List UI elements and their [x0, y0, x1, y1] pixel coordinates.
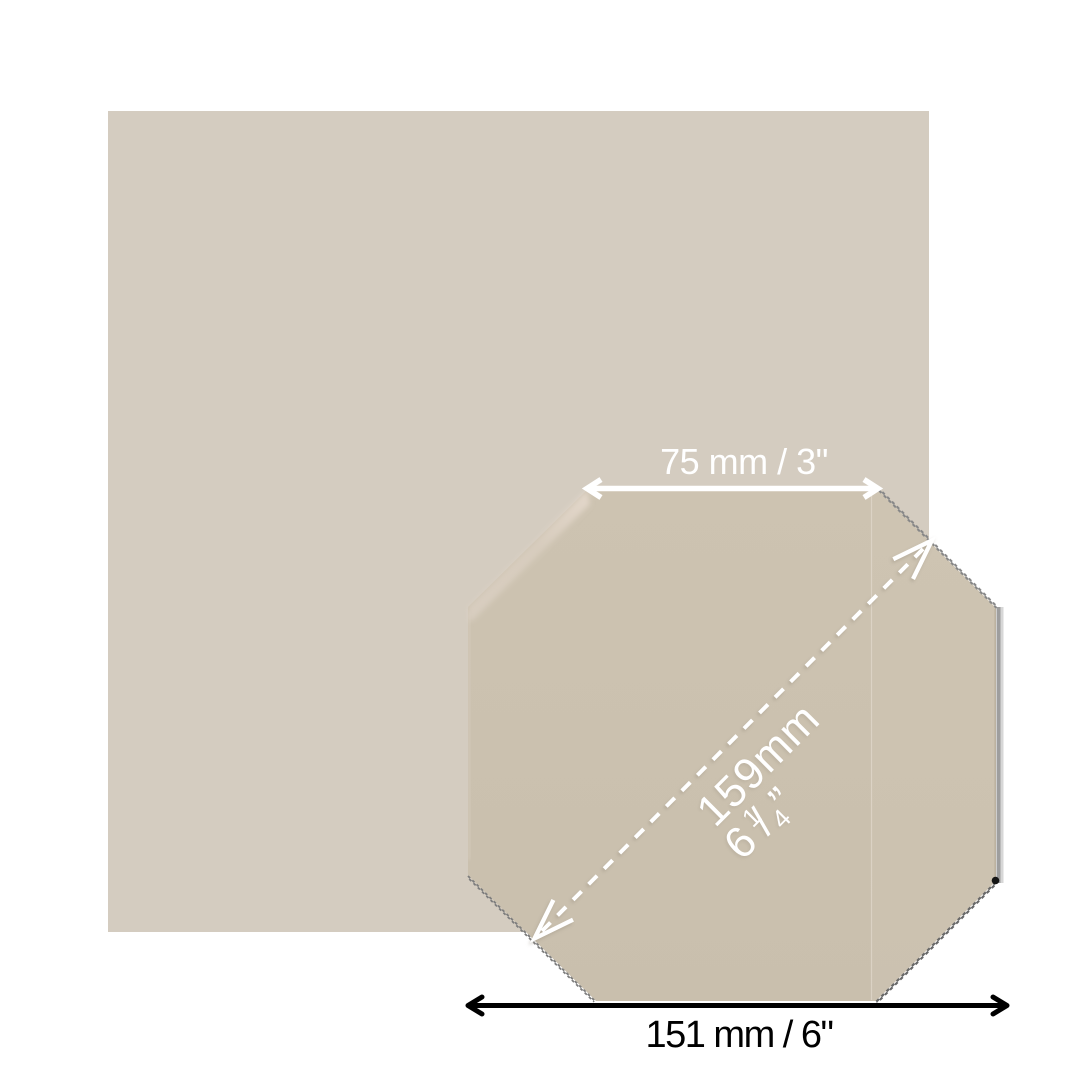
svg-text:151 mm / 6": 151 mm / 6"	[645, 1014, 832, 1056]
svg-text:75 mm / 3": 75 mm / 3"	[660, 441, 828, 482]
